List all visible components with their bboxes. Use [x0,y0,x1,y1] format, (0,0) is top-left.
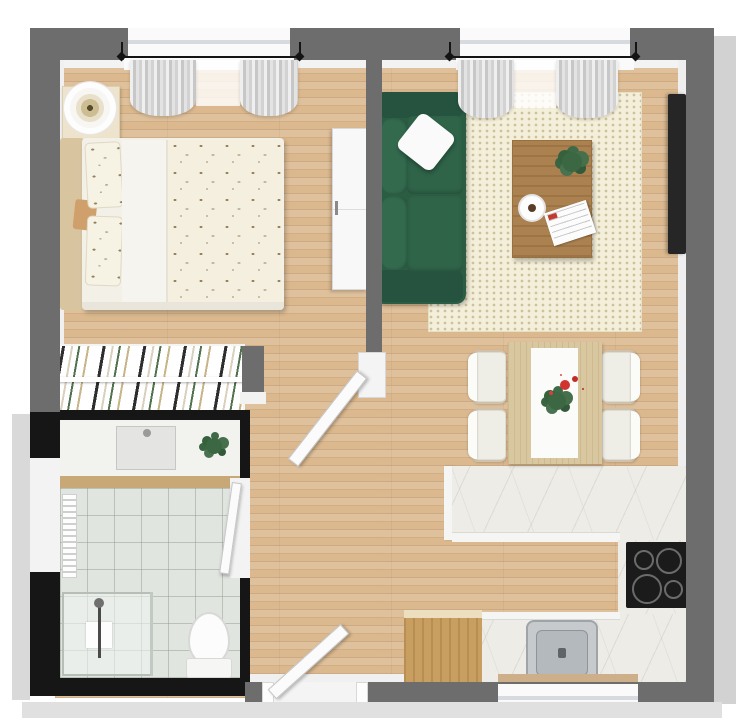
shower-head [94,598,104,608]
chair-back [468,353,477,401]
burner-medium-tr [656,548,682,574]
newspaper-masthead [548,213,558,221]
wall-outer-bevel-bottom [22,702,722,718]
wall-tv [668,94,686,254]
dimension-line [122,56,300,58]
bedroom-curtain-left [130,60,196,116]
table-lamp [64,82,116,134]
counter-bottom-face [478,612,620,620]
coffee-table-plant [562,152,582,172]
living-curtain-right [556,60,618,118]
toilet-tank [186,658,232,678]
bed-foot-edge [82,302,284,310]
dresser-seam [333,209,367,210]
counter-peninsula [452,466,688,540]
wall-left [30,28,60,412]
shower-column [98,602,101,658]
bedroom-curtain-right [240,60,298,116]
bathroom-window [30,458,60,572]
dimension-line [450,56,636,58]
bed-sheet [122,140,168,308]
sofa-back-cushion [381,118,409,194]
vanity-faucet [143,429,151,437]
dresser-handle [335,201,338,215]
closet-wall-post-cap [240,392,266,404]
bathroom-threshold [60,476,240,488]
dining-chair [602,408,636,462]
bed-pillow [85,215,123,286]
dining-chair [602,350,636,404]
centerpiece-flowers [560,380,570,390]
dresser [332,128,368,290]
living-curtain-left [458,60,514,118]
dining-chair [472,408,506,462]
wall-outer-bevel-right [714,36,736,704]
coffee-cup [520,196,544,220]
sofa-back-cushion [381,196,409,270]
centerpiece-leaves [548,392,566,410]
burner-small-br [664,580,683,599]
chair-back [468,411,477,459]
counter-front-face [452,532,620,542]
cooktop [626,542,688,608]
walk-in-shower [62,592,152,676]
burner-small-tl [634,550,654,570]
vanity-basin [116,426,176,470]
closet-wall-post [242,346,264,396]
shower-glass-screen [150,592,153,676]
chair-back [631,411,640,459]
towel-radiator [62,494,77,578]
wall-outer-bevel-left-bathroom [12,414,30,700]
burner-large-bl [632,574,662,604]
bathroom-plant [206,438,222,454]
clothes-rail [55,377,245,382]
wall-divider-bedroom-living [366,60,382,356]
coffee [528,204,536,212]
dining-chair [472,350,506,404]
bed-pillow [84,141,123,209]
bed-duvet-bird-print [168,140,282,307]
sofa-armrest-bottom [377,270,463,302]
wall-right [686,28,714,704]
bedroom-sheer-curtain [196,60,240,106]
floor-plan-canvas [0,0,736,724]
wooden-sideboard [404,618,482,682]
sofa-seat-cushion [407,196,463,272]
chair-back [631,353,640,401]
sink-faucet [558,648,566,658]
living-sheer-curtain [514,60,556,108]
